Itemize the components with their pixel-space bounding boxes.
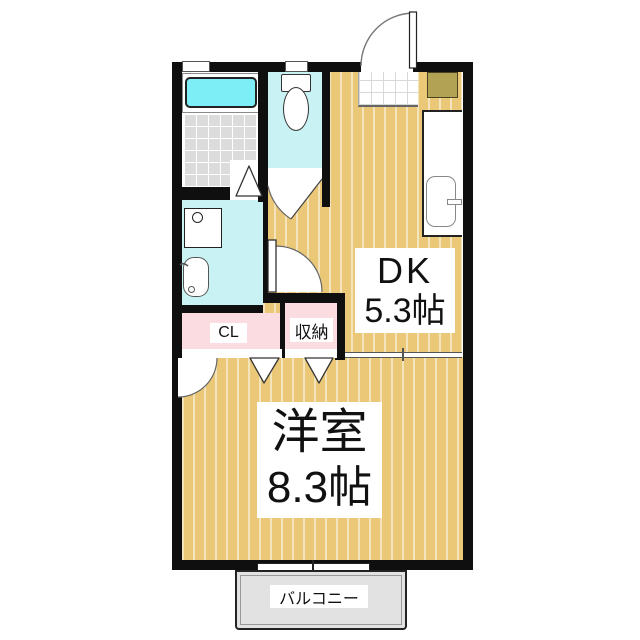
bath-window-icon bbox=[182, 61, 210, 72]
wall-washroom-hall bbox=[263, 200, 268, 303]
toilet-bowl-icon bbox=[283, 87, 309, 131]
storage-door-threshold bbox=[285, 349, 337, 358]
dk-room-label: DK 5.3帖 bbox=[355, 248, 455, 333]
floor-plan: DK 5.3帖 洋室 8.3帖 CL 収納 バルコニー bbox=[0, 0, 640, 640]
closet-label: CL bbox=[210, 323, 247, 343]
western-room-name: 洋室 bbox=[271, 405, 367, 461]
wall-washroom-closet bbox=[182, 305, 263, 313]
entrance-opening bbox=[361, 62, 413, 72]
toilet-door-threshold bbox=[268, 168, 322, 179]
bathtub-icon bbox=[185, 77, 257, 108]
shoe-cabinet-icon bbox=[427, 72, 458, 98]
entrance-tile bbox=[358, 72, 418, 107]
storage-label: 収納 bbox=[290, 318, 333, 342]
room-divider-tick bbox=[402, 348, 404, 361]
closet-door-threshold bbox=[182, 349, 282, 358]
wall-toilet-dk bbox=[322, 72, 330, 207]
entrance-door-leaf bbox=[410, 12, 417, 68]
washbasin-drain-icon bbox=[188, 286, 195, 293]
kitchen-faucet-icon bbox=[447, 199, 462, 205]
toilet-window-icon bbox=[285, 61, 308, 72]
wall-hall-storage bbox=[263, 293, 338, 303]
western-room-label: 洋室 8.3帖 bbox=[257, 402, 382, 518]
wall-bath-toilet bbox=[258, 72, 268, 202]
dk-name: DK bbox=[377, 251, 433, 291]
dk-area: 5.3帖 bbox=[364, 291, 445, 331]
washbasin-icon bbox=[183, 257, 209, 297]
balcony-label: バルコニー bbox=[270, 585, 368, 608]
western-room-area: 8.3帖 bbox=[267, 461, 372, 515]
washing-machine-drain-icon bbox=[192, 212, 203, 223]
apartment-outline: DK 5.3帖 洋室 8.3帖 CL 収納 bbox=[172, 62, 473, 570]
washing-machine-pan-icon bbox=[184, 208, 222, 248]
wall-bath-washroom bbox=[182, 187, 230, 200]
entrance-door-arc bbox=[361, 13, 413, 66]
